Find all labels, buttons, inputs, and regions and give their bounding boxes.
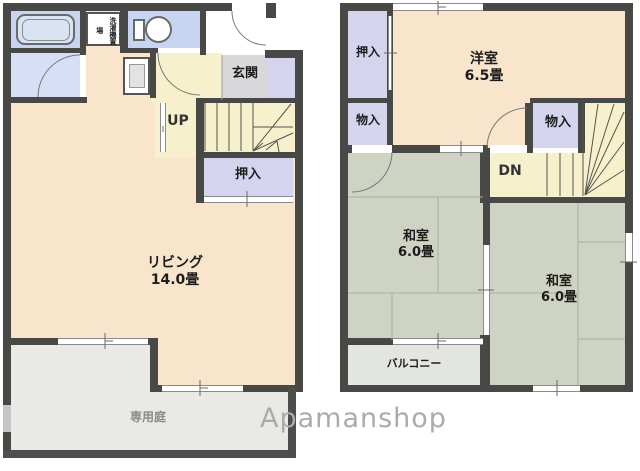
- tatami-right-size: 6.0畳: [526, 291, 592, 305]
- stairs-dn-label: DN: [494, 164, 526, 179]
- entrance-label: 玄関: [222, 67, 268, 81]
- western-room-name: 洋室: [445, 52, 523, 67]
- hall-door-arc: [487, 108, 527, 148]
- tatami-left-size: 6.0畳: [383, 246, 449, 260]
- western-room-size: 6.5畳: [445, 69, 523, 84]
- stairs-1f-lines: [205, 103, 293, 152]
- living-room-size: 14.0畳: [130, 273, 220, 288]
- toilet-door-arc: [158, 53, 200, 95]
- storage-left-label: 物入: [344, 114, 392, 127]
- balcony-label: バルコニー: [378, 358, 450, 370]
- watermark: Apamanshop: [260, 403, 447, 434]
- lines-layer: [0, 0, 640, 471]
- closet-2f-label: 押入: [346, 46, 390, 59]
- tatami-right-name: 和室: [528, 275, 590, 289]
- living-room-name: リビング: [130, 256, 220, 271]
- washroom-door-arc: [38, 55, 80, 97]
- entrance-door-arc: [232, 11, 266, 45]
- floor-plan: 洗濯機置場: [0, 0, 640, 471]
- tatami-left-name: 和室: [385, 230, 447, 244]
- stairs-up-label: UP: [164, 114, 192, 129]
- closet-1f-label: 押入: [224, 168, 272, 182]
- storage-right-label: 物入: [534, 116, 582, 130]
- window-ticks: [105, 1, 637, 396]
- storage-left-door-arc: [352, 152, 392, 192]
- garden-label: 専用庭: [119, 411, 177, 424]
- door-arcs-1f: [38, 11, 266, 97]
